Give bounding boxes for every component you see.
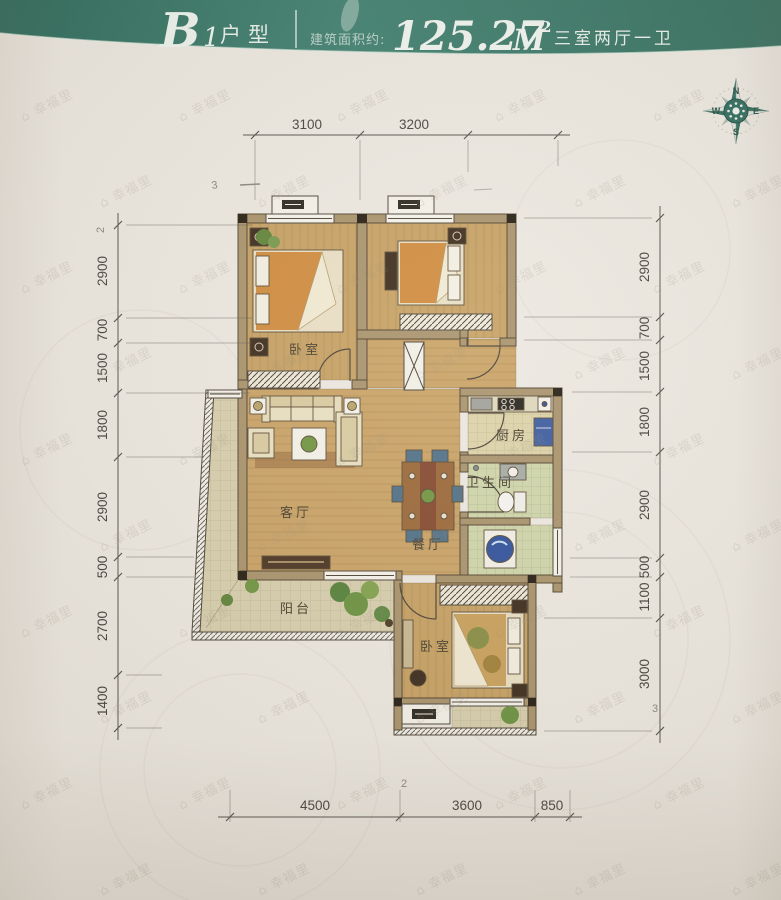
dim-left-1: 700 (95, 319, 110, 342)
window-bedroom-top-right (386, 214, 454, 223)
label-kitchen: 厨房 (496, 428, 528, 444)
dim-right-7: 3000 (637, 659, 652, 689)
wardrobe-bedroom-top-right (400, 314, 492, 330)
label-bedroom-bottom: 卧室 (420, 639, 452, 655)
duct-shaft (404, 342, 424, 390)
pillow (448, 275, 460, 300)
plant (501, 706, 519, 724)
label-bathroom: 卫生间 (466, 476, 514, 491)
pencil-mark: 3 (211, 179, 219, 192)
compass-east-label: E (753, 106, 759, 116)
nightstand (512, 684, 527, 697)
plan-series-suffix: 户型 (220, 23, 276, 47)
pencil-mark: 2 (95, 227, 107, 233)
dim-right-2: 1500 (637, 351, 652, 381)
dim-right-6: 1100 (637, 582, 652, 611)
dim-right-1: 700 (637, 317, 652, 340)
compass-center (732, 107, 739, 114)
pillow (256, 294, 269, 324)
pillow (508, 648, 520, 674)
toilet (498, 492, 514, 512)
compass-south-label: S (733, 127, 739, 137)
pencil-dash (240, 184, 260, 185)
wardrobe-bedroom-top-left (248, 371, 320, 388)
plant (301, 436, 317, 452)
dim-left-3: 1800 (95, 410, 110, 440)
kitchen-sink (471, 398, 492, 410)
area-label: 建筑面积约: (310, 32, 385, 48)
label-balcony: 阳台 (280, 602, 312, 617)
dim-right-0: 2900 (637, 252, 652, 282)
window-balcony-corridor-top (208, 390, 242, 398)
dim-bottom-1: 3600 (452, 798, 482, 813)
dim-left-6: 2700 (95, 611, 110, 641)
pencil-mark: 3 (652, 703, 658, 715)
dining-room-furniture (392, 450, 463, 542)
dim-bottom-0: 4500 (300, 798, 330, 813)
shower-head (474, 466, 479, 471)
window-bedroom-bottom (450, 698, 524, 706)
desk (403, 620, 413, 668)
plan-series-letter: B (158, 3, 201, 59)
window-bedroom-top-left (266, 214, 334, 223)
toilet-tank (514, 492, 526, 512)
dim-right-5: 500 (637, 556, 652, 579)
plan-series-number: 1 (203, 23, 220, 53)
nightstand (250, 338, 268, 356)
dim-right-3: 1800 (637, 407, 652, 437)
dim-left-5: 500 (95, 556, 110, 579)
compass-north-label: N (733, 86, 740, 96)
header-band: B 1 户型 建筑面积约: 125.27 M 2 三室两厅一卫 (0, 0, 781, 60)
area-exponent: 2 (541, 18, 551, 36)
window-living-south (324, 571, 396, 580)
dresser (385, 252, 397, 290)
laundry-fixtures (484, 530, 516, 568)
pillow (448, 246, 460, 271)
dim-left-0: 2900 (95, 256, 110, 286)
ac-platform-north-2 (388, 196, 434, 214)
compass-west-label: W (712, 106, 721, 116)
dim-left-4: 2900 (95, 492, 110, 522)
pillow (256, 256, 269, 286)
nightstand (512, 600, 527, 613)
dim-left-7: 1400 (95, 686, 110, 716)
dim-top-0: 3100 (292, 117, 322, 132)
nightstand (448, 228, 466, 244)
label-bedroom-top-left: 卧室 (289, 342, 321, 358)
rooms-summary: 三室两厅一卫 (554, 29, 674, 49)
sofa-set (248, 396, 362, 466)
floor-plan-sheet: B 1 户型 建筑面积约: 125.27 M 2 三室两厅一卫 (0, 0, 781, 900)
dim-left-2: 1500 (95, 353, 110, 383)
window-laundry-east (553, 528, 562, 576)
stool (410, 670, 426, 686)
ac-platform-south (402, 704, 450, 724)
balcony-railing-south (192, 632, 398, 640)
dim-right-4: 2900 (637, 490, 652, 520)
pencil-mark: 2 (401, 778, 407, 790)
ac-platform-north-1 (272, 196, 318, 214)
fridge (534, 418, 553, 446)
dim-bottom-2: 850 (541, 798, 564, 813)
pencil-dash (474, 189, 492, 190)
dim-top-1: 3200 (399, 117, 429, 132)
pillow (508, 618, 520, 644)
south-balcony-railing (394, 728, 536, 735)
label-living-room: 客厅 (280, 505, 312, 521)
table-centerpiece (421, 489, 435, 503)
compass-rose: N E S W (703, 78, 769, 144)
label-dining-room: 餐厅 (412, 537, 444, 553)
